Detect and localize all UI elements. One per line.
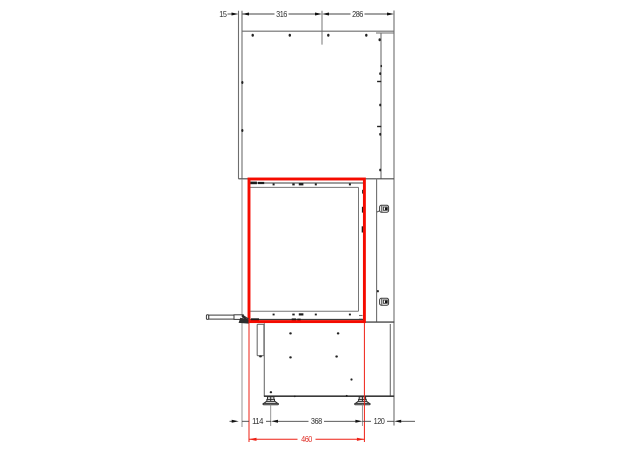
svg-text:368: 368 [311, 417, 323, 426]
svg-text:114: 114 [252, 417, 264, 426]
svg-text:15: 15 [219, 10, 227, 19]
svg-text:460: 460 [301, 435, 313, 444]
svg-text:120: 120 [374, 417, 386, 426]
svg-text:316: 316 [276, 10, 288, 19]
svg-text:286: 286 [352, 10, 364, 19]
